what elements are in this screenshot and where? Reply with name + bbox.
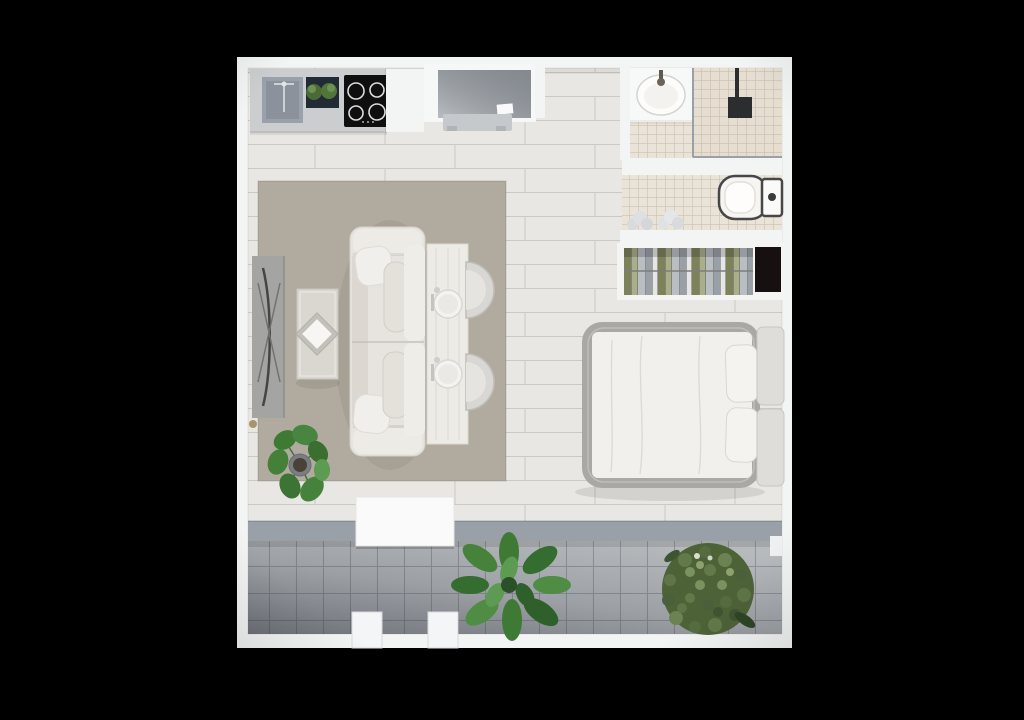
- wall-stub: [535, 57, 545, 118]
- toilet: [719, 176, 782, 219]
- kitchen: [250, 69, 424, 135]
- shower-head: [728, 97, 752, 118]
- headboard-lower: [757, 409, 784, 486]
- door-handle: [249, 420, 257, 428]
- bathroom-wall-stub: [620, 57, 630, 160]
- washbasin: [630, 68, 692, 124]
- kitchen-sink: [262, 77, 303, 123]
- shower: [693, 68, 782, 157]
- tv-console: [249, 256, 285, 428]
- headboard: [757, 327, 784, 405]
- herb-planter: [306, 77, 339, 108]
- desk-paper: [497, 103, 514, 114]
- bed: [575, 322, 784, 501]
- cutlery: [431, 364, 434, 381]
- render-stage: [0, 0, 1024, 720]
- balcony-table: [356, 497, 454, 549]
- seat-cushion-top: [404, 245, 425, 341]
- shower-arm: [735, 68, 739, 99]
- glass: [434, 357, 440, 363]
- scene-svg: [0, 0, 1024, 720]
- desk: [424, 64, 536, 131]
- cooktop: [344, 75, 390, 127]
- dining-table: [427, 244, 468, 444]
- wardrobe-cabinet: [755, 247, 781, 292]
- upper-cabinet: [386, 69, 424, 132]
- balcony-plant-left: [451, 532, 571, 641]
- seat-cushion-bottom: [404, 343, 425, 436]
- coffee-table: [296, 289, 340, 389]
- balcony-step: [770, 536, 782, 556]
- sofa: [350, 227, 425, 456]
- pillow-top: [725, 344, 759, 402]
- bathroom-lower-wall: [620, 230, 782, 244]
- cutlery: [431, 294, 434, 311]
- wardrobe-clothes: [624, 248, 753, 295]
- glass: [434, 287, 440, 293]
- flush-button: [768, 193, 776, 201]
- pillow-bottom: [725, 407, 759, 462]
- bathroom-mid-wall: [622, 158, 782, 175]
